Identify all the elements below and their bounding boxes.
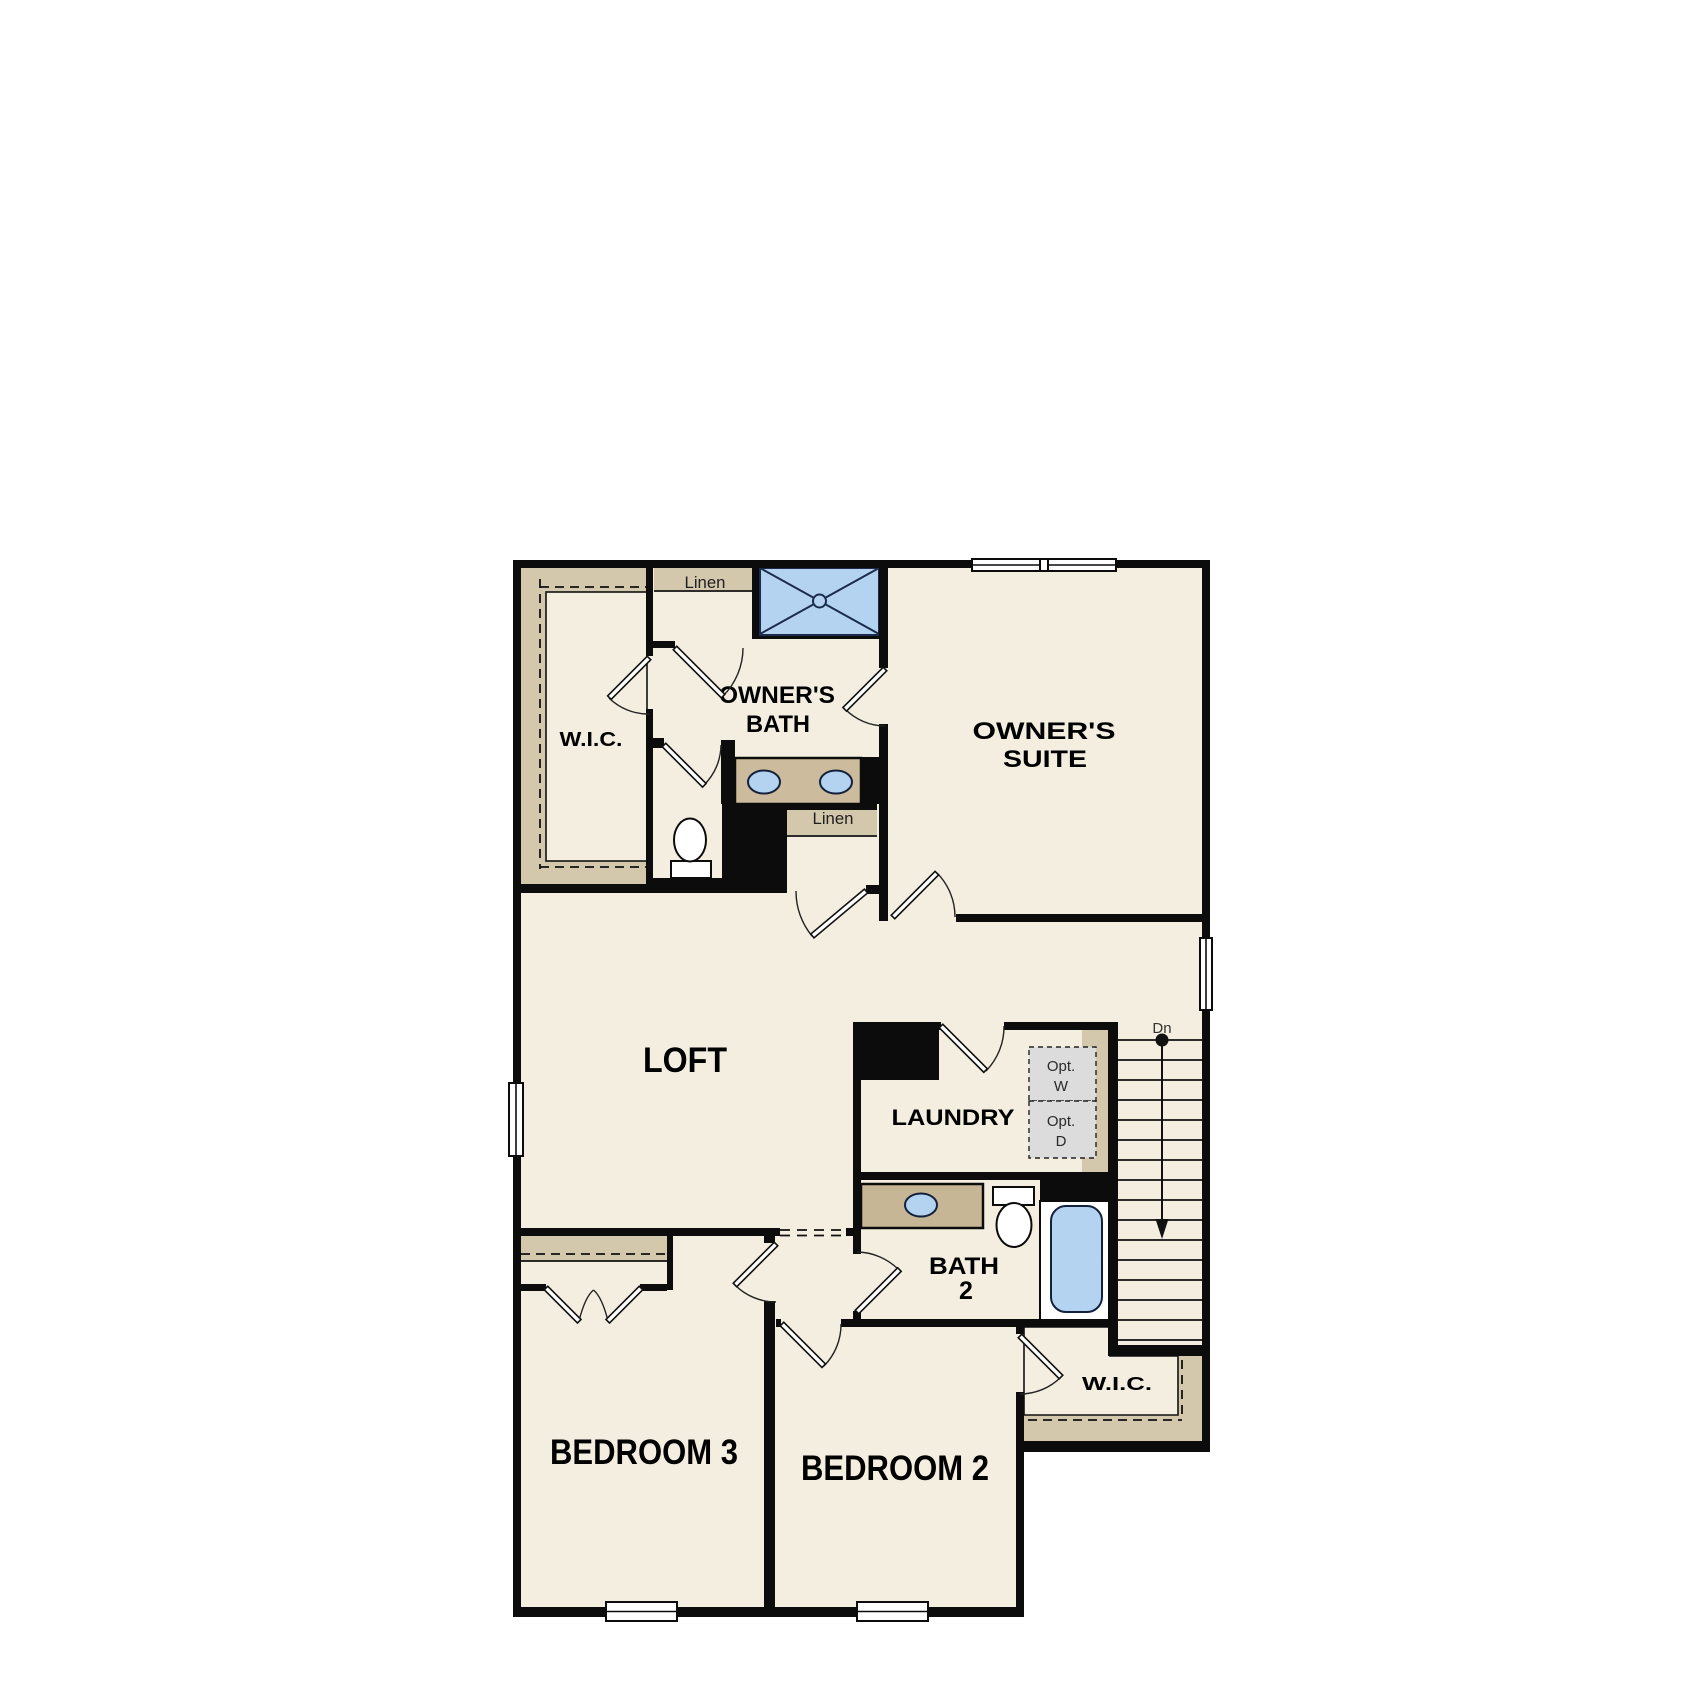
svg-text:2: 2 xyxy=(959,1277,973,1305)
svg-text:OWNER'S: OWNER'S xyxy=(719,682,835,709)
svg-text:Dn: Dn xyxy=(1152,1020,1171,1037)
svg-text:BATH: BATH xyxy=(929,1253,999,1280)
svg-text:BEDROOM 2: BEDROOM 2 xyxy=(801,1449,989,1488)
svg-text:W: W xyxy=(1054,1078,1069,1095)
svg-text:D: D xyxy=(1056,1133,1067,1150)
svg-text:Linen: Linen xyxy=(685,573,726,592)
svg-text:Opt.: Opt. xyxy=(1047,1058,1075,1075)
svg-text:W.I.C.: W.I.C. xyxy=(560,729,623,751)
svg-text:BEDROOM 3: BEDROOM 3 xyxy=(550,1433,738,1472)
svg-text:LAUNDRY: LAUNDRY xyxy=(892,1105,1015,1130)
svg-text:BATH: BATH xyxy=(746,711,810,738)
svg-text:Linen: Linen xyxy=(813,809,854,828)
svg-text:SUITE: SUITE xyxy=(1003,746,1087,773)
svg-text:LOFT: LOFT xyxy=(643,1041,727,1080)
svg-text:W.I.C.: W.I.C. xyxy=(1082,1374,1152,1394)
svg-text:Opt.: Opt. xyxy=(1047,1113,1075,1130)
svg-text:OWNER'S: OWNER'S xyxy=(973,718,1116,745)
